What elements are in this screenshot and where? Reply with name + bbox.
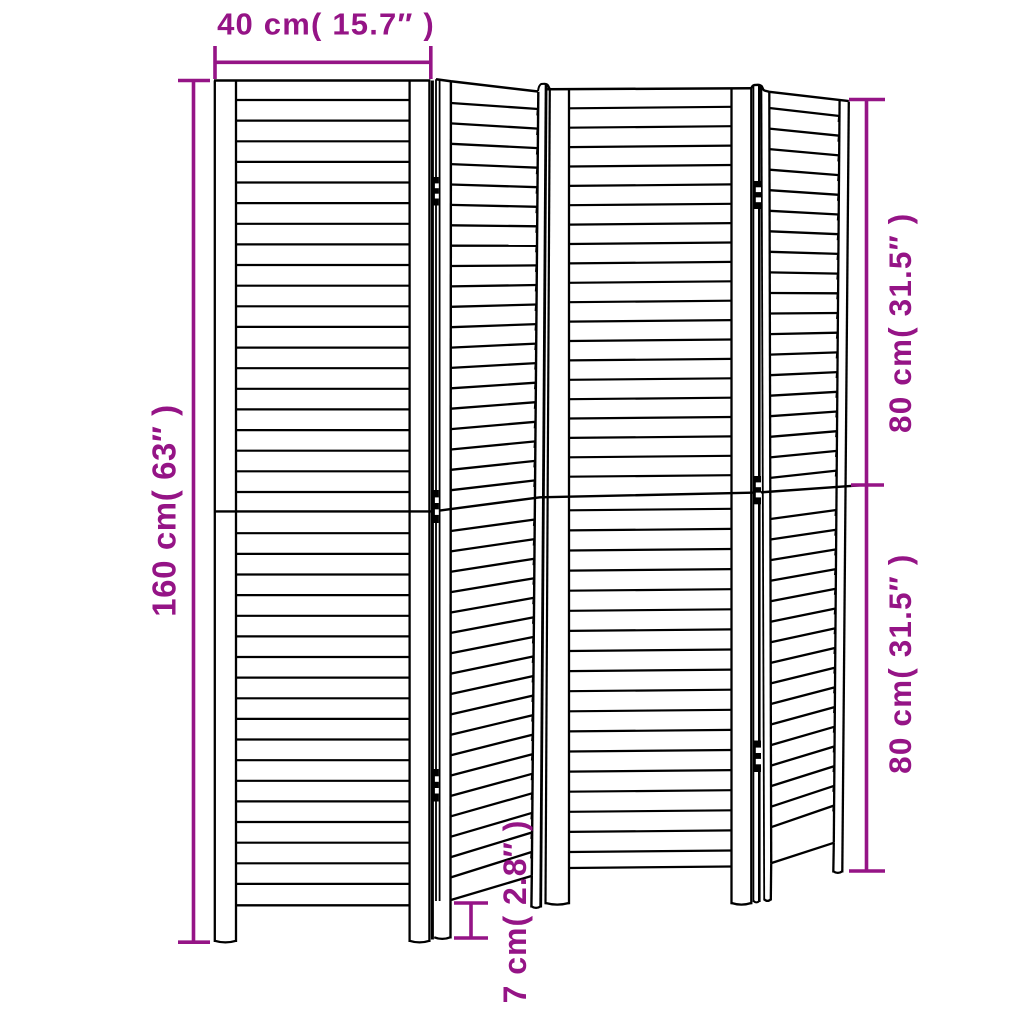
svg-text:160 cm( 63″ ): 160 cm( 63″ ): [146, 404, 183, 617]
svg-text:7 cm( 2.8″ ): 7 cm( 2.8″ ): [497, 820, 533, 1004]
svg-text:40 cm( 15.7″ ): 40 cm( 15.7″ ): [217, 7, 435, 42]
svg-text:80 cm( 31.5″ ): 80 cm( 31.5″ ): [882, 554, 918, 774]
svg-text:80 cm( 31.5″ ): 80 cm( 31.5″ ): [882, 213, 918, 433]
